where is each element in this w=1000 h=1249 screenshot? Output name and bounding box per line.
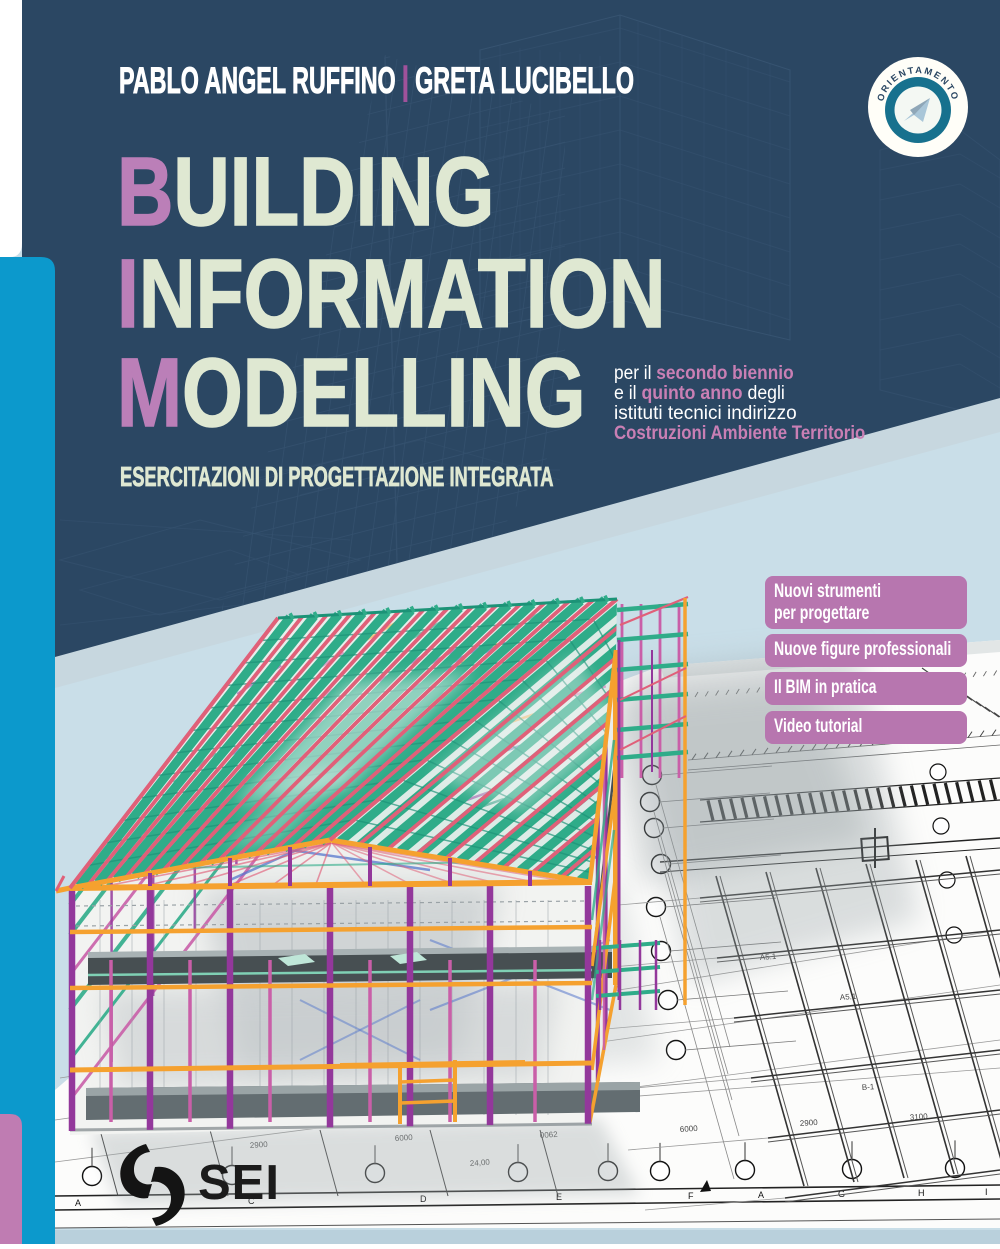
svg-text:A: A xyxy=(758,1190,764,1200)
svg-text:3100: 3100 xyxy=(910,1112,929,1122)
svg-text:B-1: B-1 xyxy=(862,1082,876,1092)
svg-text:A5.1: A5.1 xyxy=(840,992,858,1002)
svg-text:2900: 2900 xyxy=(800,1118,819,1128)
svg-text:A: A xyxy=(75,1198,81,1208)
svg-text:SEI: SEI xyxy=(198,1156,280,1210)
svg-text:F: F xyxy=(688,1191,694,1201)
svg-text:I: I xyxy=(985,1187,988,1197)
svg-text:H: H xyxy=(918,1188,925,1198)
svg-text:6000: 6000 xyxy=(680,1124,699,1134)
